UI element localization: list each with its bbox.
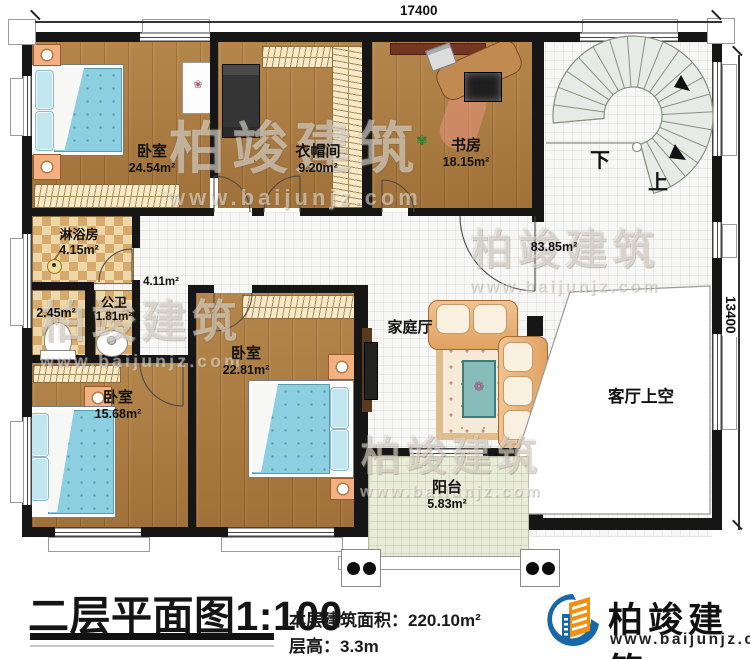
wall — [22, 282, 94, 290]
bedroom1-label: 卧室 24.54m² — [129, 144, 176, 175]
window — [228, 527, 334, 537]
wall — [362, 42, 372, 214]
tv-icon — [364, 342, 378, 400]
family-hall-label: 家庭厅 — [387, 320, 432, 337]
shower-head-center — [52, 263, 56, 267]
nightstand — [328, 354, 356, 380]
wall — [188, 285, 196, 537]
window-sill — [10, 421, 24, 503]
tv-cabinet — [222, 64, 260, 138]
floor-height-label: 层高： — [289, 637, 340, 656]
toilet-ante-label: 2.45m² — [36, 306, 76, 320]
window-sill — [722, 64, 737, 156]
column-dot — [526, 562, 539, 575]
column-dot — [347, 562, 360, 575]
wall — [300, 208, 372, 216]
window-sill — [48, 537, 150, 552]
wall — [132, 216, 140, 248]
dimension-corner-box — [8, 19, 36, 45]
floor-plan-sheet: ❀ ✾ ❁ 下 上 — [0, 0, 750, 659]
shower-room-label: 淋浴房 4.15m² — [59, 228, 99, 257]
pillow — [331, 430, 348, 470]
bedroom2-label: 卧室 22.81m² — [223, 346, 270, 377]
bedroom1-closet — [34, 184, 180, 208]
plant-icon: ✾ — [416, 132, 428, 149]
bedroom3-closet — [33, 365, 121, 383]
cloakroom-label: 衣帽间 9.20m² — [295, 144, 340, 175]
floor-area-line: 本层建筑面积：220.10m² — [289, 606, 481, 631]
wall — [408, 208, 544, 216]
balcony-label: 阳台 5.83m² — [427, 480, 467, 511]
wall — [85, 290, 95, 355]
wall — [22, 208, 214, 216]
column-dot — [542, 562, 555, 575]
window-sill — [10, 238, 24, 326]
living-void-label: 客厅上空 — [608, 388, 674, 406]
wall — [252, 208, 264, 216]
floor-height-line: 层高：3.3m — [289, 632, 379, 657]
bedroom2-closet — [242, 295, 356, 319]
window — [140, 32, 210, 42]
window — [712, 222, 722, 258]
wall — [132, 280, 140, 363]
wall — [210, 42, 218, 178]
corridor-label: 4.11m² — [143, 276, 179, 289]
floor-height-value: 3.3m — [340, 637, 379, 656]
balcony-column — [520, 549, 560, 587]
wall — [372, 208, 382, 216]
stair-up-label: 上 — [648, 166, 668, 195]
toilet-tank — [40, 350, 76, 360]
floor-area-value: 220.10m² — [408, 611, 481, 630]
computer-monitor — [464, 72, 502, 102]
pillow — [36, 71, 53, 109]
dimension-line-top — [35, 21, 722, 23]
cloakroom-wardrobe-side — [332, 46, 364, 208]
public-wc-label: 公卫 1.81m² — [96, 296, 132, 323]
sofa-cushion — [436, 304, 470, 334]
dimension-line-right — [738, 55, 740, 530]
window-sill — [221, 537, 343, 552]
brand-logo-icon — [543, 590, 603, 652]
pillow — [36, 112, 53, 150]
dimension-right-value: 13400 — [723, 293, 738, 337]
bedroom3-label: 卧室 15.68m² — [95, 390, 142, 421]
title-underline-thin — [30, 645, 274, 647]
study-label: 书房 18.15m² — [443, 138, 490, 169]
balcony-column — [341, 549, 381, 587]
nightstand — [33, 44, 61, 66]
window-sill — [10, 78, 24, 136]
balcony-floor — [368, 456, 529, 568]
title-underline — [30, 633, 274, 640]
brand-logo-url: www.baijunjz.com — [610, 631, 750, 649]
pillow — [31, 414, 48, 456]
stair-down-label: 下 — [590, 144, 610, 173]
family-hall-area-label: 83.85m² — [531, 240, 578, 254]
window — [55, 527, 141, 537]
spiral-staircase — [538, 34, 718, 196]
floor-area-label: 本层建筑面积： — [289, 611, 408, 630]
window-sill — [722, 224, 737, 258]
pillow — [331, 388, 348, 428]
wall — [252, 285, 368, 293]
column-dot — [363, 562, 376, 575]
sink-drain — [107, 336, 116, 345]
window-sill — [722, 336, 737, 430]
nightstand — [330, 478, 356, 500]
pillow — [31, 458, 48, 500]
nightstand — [33, 154, 61, 180]
dimension-top-value: 17400 — [396, 3, 442, 18]
